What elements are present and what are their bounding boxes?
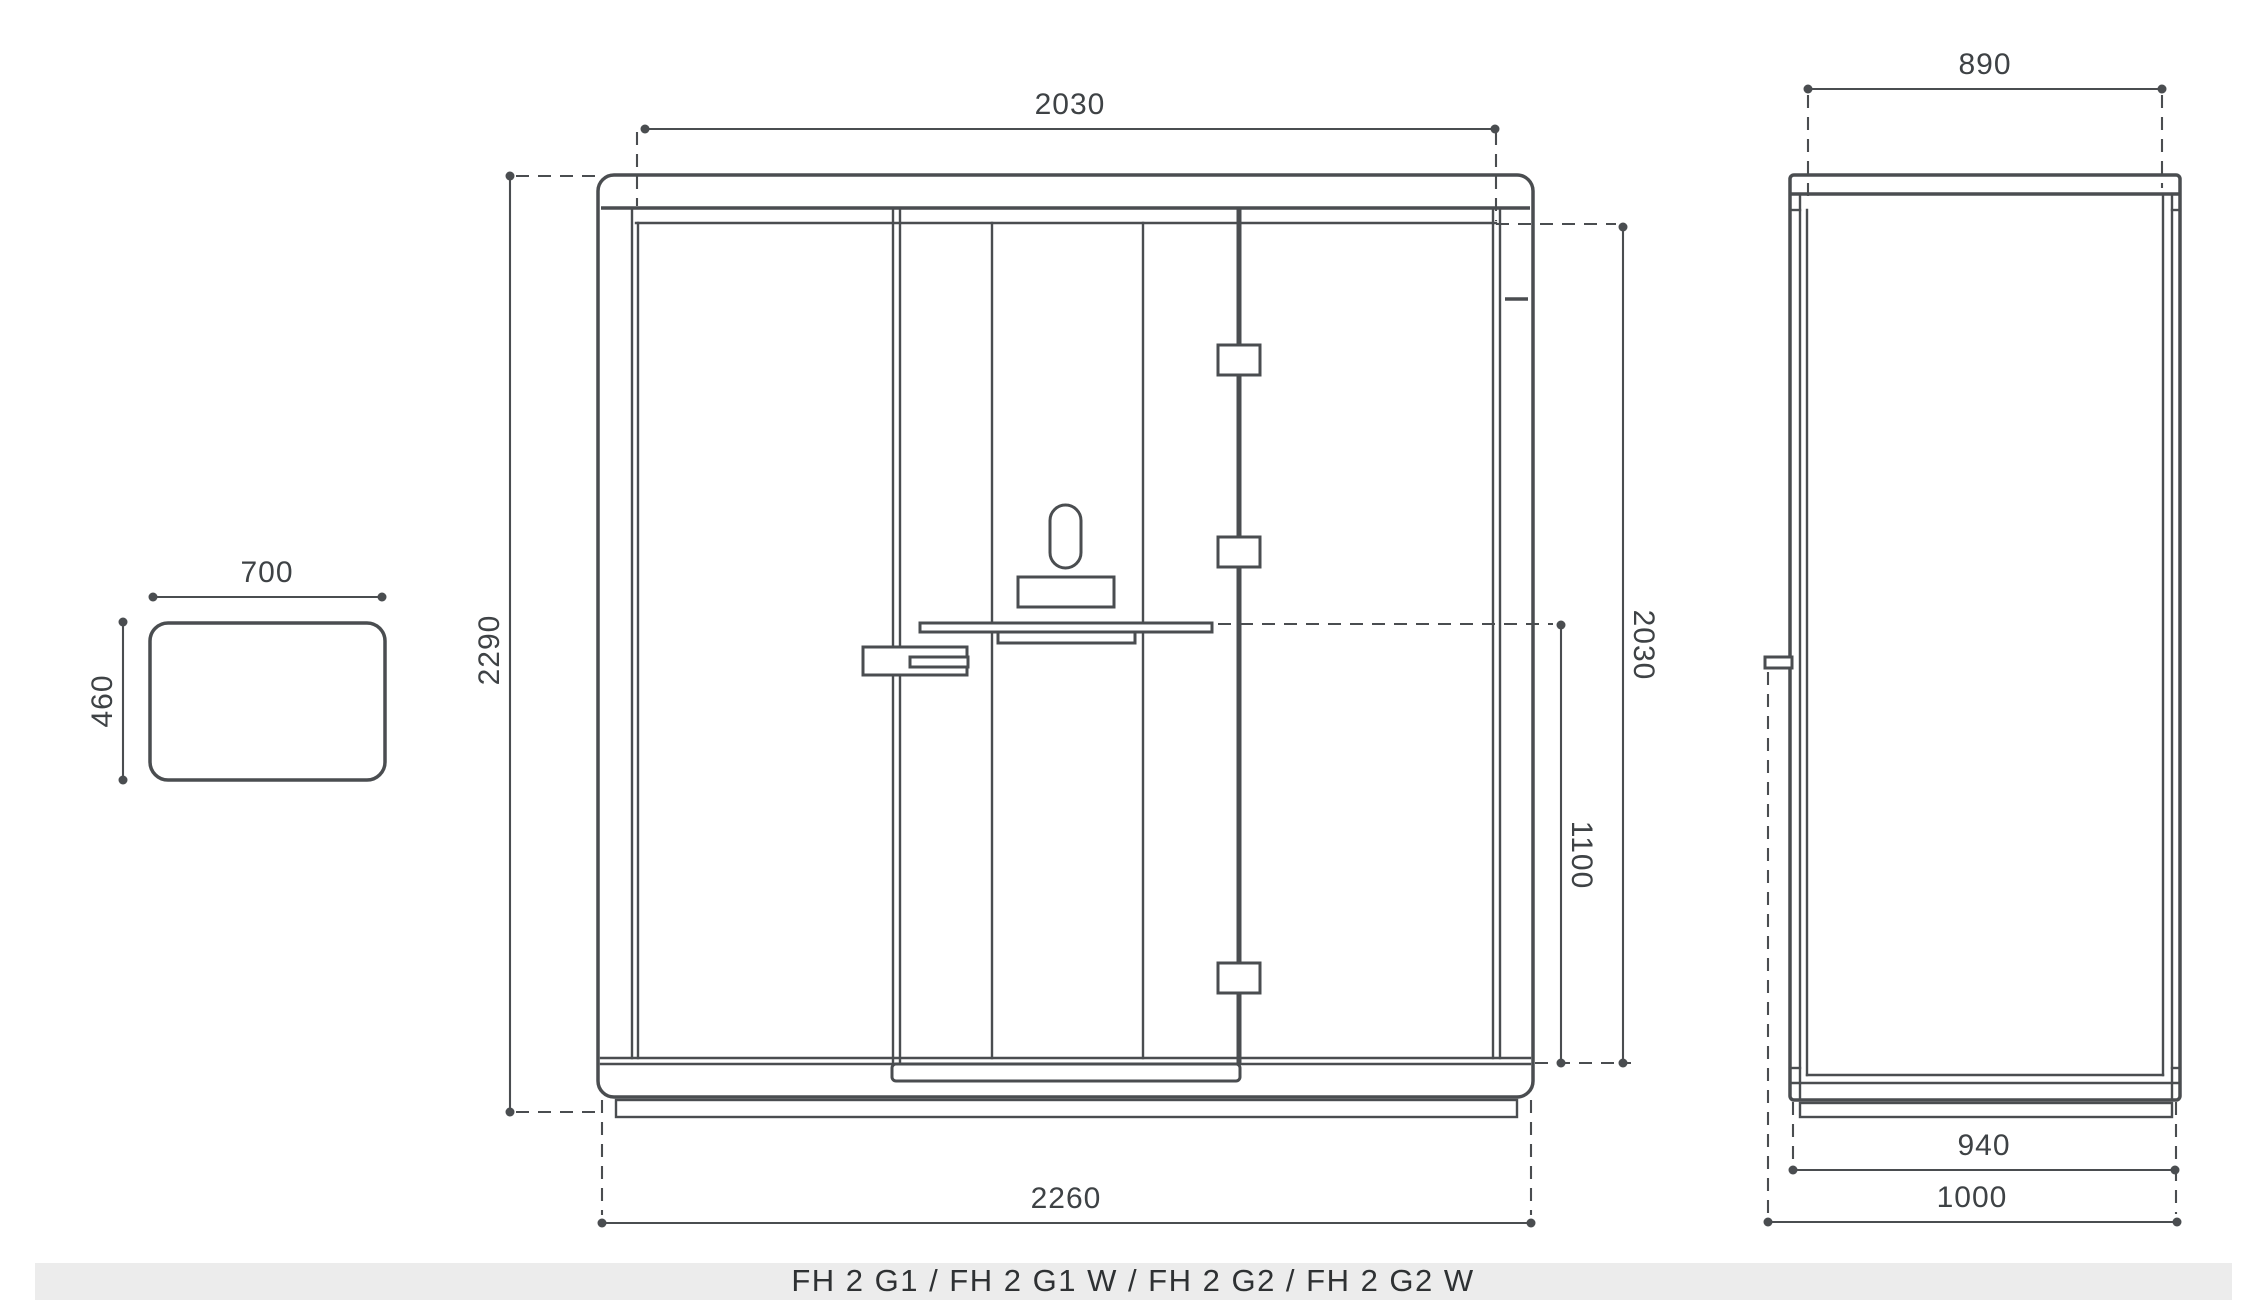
dim-label-interior-height: 2030 bbox=[1627, 610, 1660, 681]
dim-label-front-width: 2260 bbox=[1031, 1182, 1102, 1215]
dim-dot bbox=[119, 776, 128, 785]
caption-band: FH 2 G1 / FH 2 G1 W / FH 2 G2 / FH 2 G2 … bbox=[35, 1263, 2232, 1300]
door-hinge-top bbox=[1218, 345, 1260, 375]
dim-dot bbox=[1804, 85, 1813, 94]
door-hinge-bottom bbox=[1218, 963, 1260, 993]
dim-dot bbox=[119, 618, 128, 627]
dim-label-side-bodydepth: 940 bbox=[1957, 1129, 2010, 1162]
dim-dot bbox=[2173, 1218, 2182, 1227]
dim-label-table-depth: 460 bbox=[86, 674, 119, 727]
dim-dot bbox=[2171, 1166, 2180, 1175]
dim-label-front-height: 2290 bbox=[473, 615, 506, 686]
dim-dot bbox=[1527, 1219, 1536, 1228]
model-caption: FH 2 G1 / FH 2 G1 W / FH 2 G2 / FH 2 G2 … bbox=[791, 1263, 1474, 1298]
dim-dot bbox=[1491, 125, 1500, 134]
dim-dot bbox=[598, 1219, 607, 1228]
dim-dot bbox=[1557, 1059, 1566, 1068]
dim-dot bbox=[1557, 621, 1566, 630]
interior-capsule-lamp bbox=[1050, 505, 1081, 568]
side-view bbox=[1765, 175, 2180, 1117]
dim-dot bbox=[149, 593, 158, 602]
dim-dot bbox=[1619, 1059, 1628, 1068]
dimensions: 2030 2290 2030 1100 2260 890 940 bbox=[473, 48, 2182, 1228]
dim-label-side-overalldepth: 1000 bbox=[1937, 1181, 2008, 1214]
drawing-canvas: 700 460 bbox=[0, 0, 2267, 1300]
drawing-sheet: 700 460 bbox=[0, 0, 2267, 1300]
table-outline bbox=[150, 623, 385, 780]
dim-dot bbox=[1789, 1166, 1798, 1175]
front-view bbox=[598, 175, 1533, 1117]
dim-label-side-topdepth: 890 bbox=[1958, 48, 2011, 81]
extension-lines bbox=[516, 95, 2176, 1215]
interior-shelf-box bbox=[1018, 577, 1114, 607]
dim-dot bbox=[1764, 1218, 1773, 1227]
dim-label-table-height: 1100 bbox=[1565, 821, 1598, 890]
dim-dot bbox=[641, 125, 650, 134]
front-base-plinth bbox=[616, 1100, 1517, 1117]
side-outer-frame bbox=[1790, 175, 2180, 1100]
dim-dot bbox=[506, 1108, 515, 1117]
dim-dot bbox=[378, 593, 387, 602]
door-handle-bar bbox=[910, 657, 968, 667]
interior-table-support bbox=[998, 632, 1135, 643]
dim-label-front-topwidth: 2030 bbox=[1035, 88, 1106, 121]
door-bottom-rail bbox=[892, 1064, 1240, 1081]
dim-dot bbox=[1619, 223, 1628, 232]
door-hinge-middle bbox=[1218, 537, 1260, 567]
table-top-view: 700 460 bbox=[86, 556, 387, 785]
side-door-handle bbox=[1765, 657, 1792, 668]
dim-label-table-width: 700 bbox=[240, 556, 293, 589]
dim-dot bbox=[2158, 85, 2167, 94]
dim-dot bbox=[506, 172, 515, 181]
side-base-plinth bbox=[1800, 1103, 2172, 1117]
